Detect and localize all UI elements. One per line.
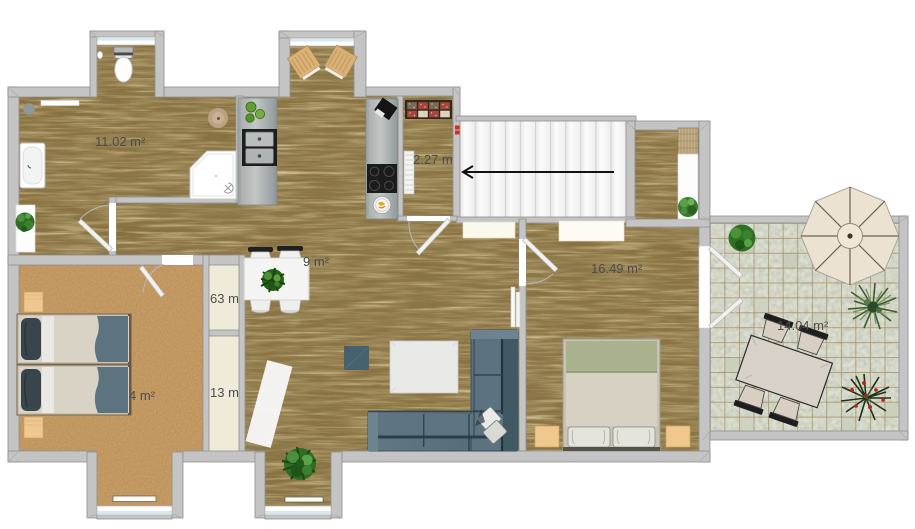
- svg-text:63 m: 63 m: [210, 291, 239, 306]
- svg-text:11.02 m²: 11.02 m²: [95, 134, 146, 149]
- svg-text:4 m²: 4 m²: [129, 388, 156, 403]
- svg-text:2.27 m: 2.27 m: [413, 152, 453, 167]
- svg-text:13 m: 13 m: [210, 385, 239, 400]
- svg-text:9 m²: 9 m²: [303, 254, 330, 269]
- svg-text:16.49 m²: 16.49 m²: [591, 261, 643, 276]
- svg-text:14.04 m²: 14.04 m²: [777, 318, 829, 333]
